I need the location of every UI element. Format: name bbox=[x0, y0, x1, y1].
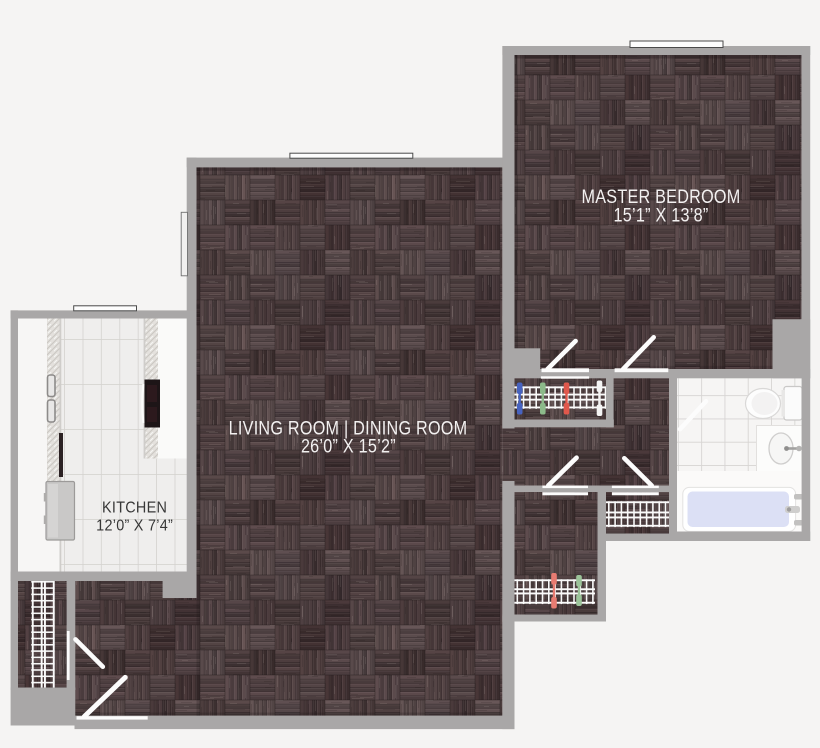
svg-text:KITCHEN: KITCHEN bbox=[102, 499, 167, 517]
svg-text:26’0” X 15’2”: 26’0” X 15’2” bbox=[301, 435, 396, 457]
svg-text:12’0” X 7’4”: 12’0” X 7’4” bbox=[96, 517, 173, 535]
svg-text:15’1” X 13’8”: 15’1” X 13’8” bbox=[614, 204, 709, 226]
